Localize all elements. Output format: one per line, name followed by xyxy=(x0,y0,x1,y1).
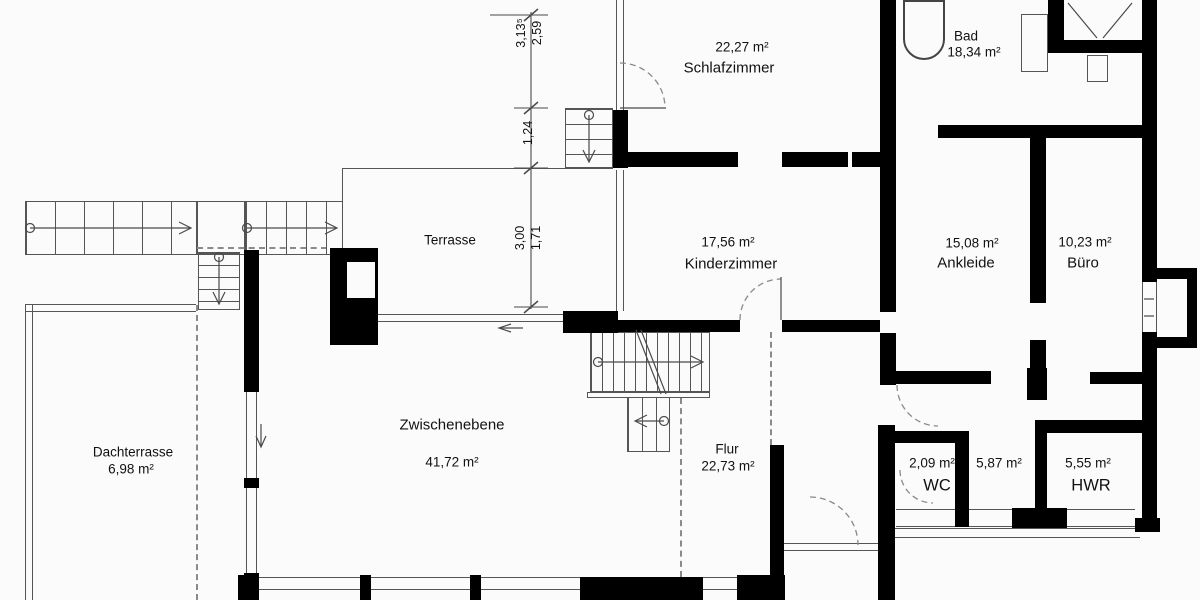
stair-direction-lines xyxy=(26,111,704,448)
room-area-zwischenebene: 41,72 m² xyxy=(425,455,478,470)
door-swing-arc-kinderzimmer xyxy=(740,279,781,320)
room-area-kinderzimmer: 17,56 m² xyxy=(701,235,754,250)
room-area-dachterrasse: 6,98 m² xyxy=(108,462,154,477)
room-name-hwr: HWR xyxy=(1071,477,1110,496)
room-name-flur: Flur xyxy=(715,442,738,457)
floor-plan: 22,27 m² Schlafzimmer Bad 18,34 m² Terra… xyxy=(0,0,1200,600)
room-name-ankleide: Ankleide xyxy=(937,255,995,272)
room-name-bad: Bad xyxy=(954,29,978,44)
room-name-buero: Büro xyxy=(1067,255,1099,272)
room-area-schlafzimmer: 22,27 m² xyxy=(715,40,768,55)
room-name-terrasse: Terrasse xyxy=(424,233,476,248)
door-swing-arc-flur xyxy=(810,497,858,545)
dimension-label: 3,13⁵ xyxy=(514,18,528,48)
room-area-hwr: 5,55 m² xyxy=(1065,456,1111,471)
dimension-label: 1,71 xyxy=(529,226,543,250)
plan-linework xyxy=(0,0,1200,600)
door-swing-arc-schlafzimmer xyxy=(620,63,665,108)
shaft-diagonal xyxy=(1103,3,1132,38)
room-area-unnamed: 5,87 m² xyxy=(976,456,1022,471)
dimension-label: 1,24 xyxy=(521,121,535,145)
dimension-label: 3,00 xyxy=(513,226,527,250)
room-name-schlafzimmer: Schlafzimmer xyxy=(684,60,775,77)
room-name-zwischenebene: Zwischenebene xyxy=(399,417,504,434)
room-area-ankleide: 15,08 m² xyxy=(945,236,998,251)
room-area-bad: 18,34 m² xyxy=(947,45,1000,60)
room-area-flur: 22,73 m² xyxy=(701,459,754,474)
dimension-chain xyxy=(490,9,548,313)
room-name-dachterrasse: Dachterrasse xyxy=(93,445,173,460)
room-area-buero: 10,23 m² xyxy=(1058,235,1111,250)
shaft-diagonal xyxy=(1068,3,1097,38)
room-name-wc: WC xyxy=(923,477,951,496)
room-name-kinderzimmer: Kinderzimmer xyxy=(685,256,778,273)
door-swing-arc-ankleide xyxy=(897,385,938,426)
dimension-label: 2,59 xyxy=(530,21,544,45)
room-area-wc: 2,09 m² xyxy=(909,456,955,471)
